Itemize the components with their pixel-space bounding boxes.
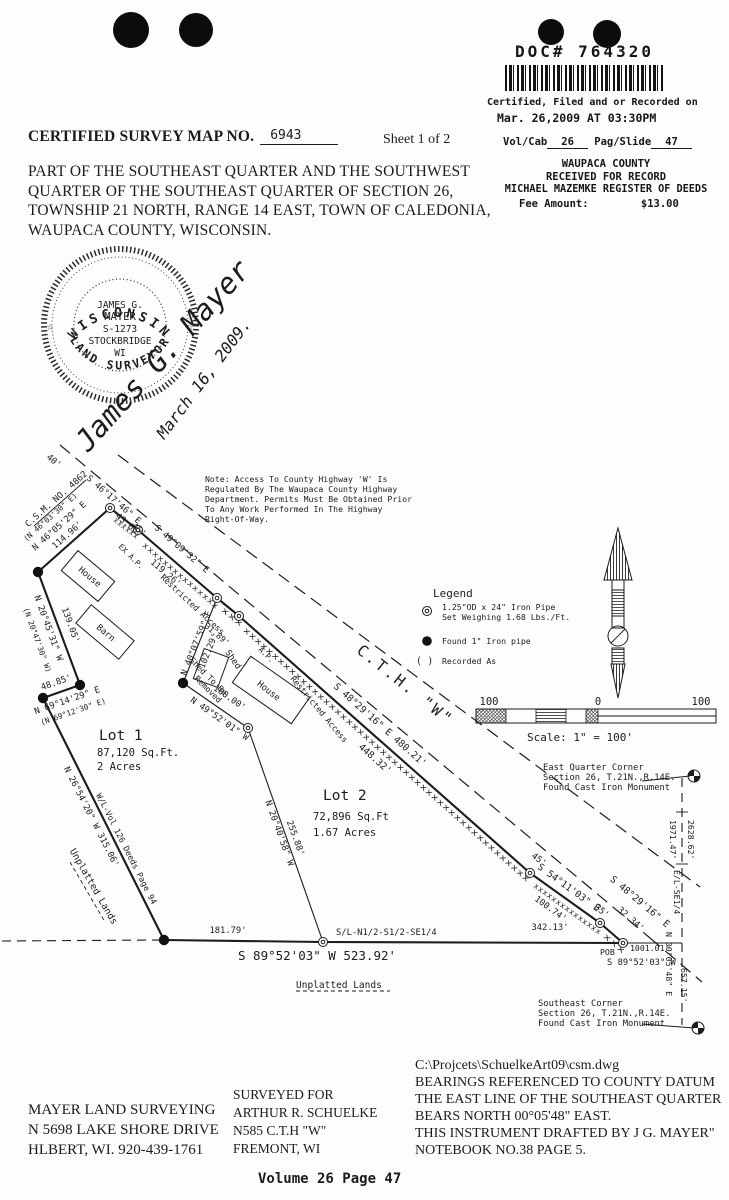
description-line2: QUARTER OF THE SOUTHEAST QUARTER OF SECT… (28, 182, 491, 202)
csm-number: 6943 (260, 128, 337, 145)
note-line5: Right-Of-Way. (205, 514, 269, 524)
set-pipe-legend-icon (423, 607, 432, 616)
seal-name-line1: JAMES G. (97, 300, 143, 311)
found-pipe-legend-icon (422, 636, 432, 646)
certified-line2: Mar. 26,2009 AT 03:30PM (497, 111, 656, 125)
legend-paren-icon: ( ) (416, 656, 433, 667)
highway-access-note: Note: Access To County Highway 'W' Is Re… (205, 474, 412, 524)
south-line-label: S/L-N1/2-S1/2-SE1/4 (336, 928, 437, 938)
drawing-file-path: C:\Projcets\SchuelkeArt09\csm.dwg (415, 1057, 721, 1074)
note-line2: Regulated By The Waupaca County Highway (205, 484, 397, 494)
east-quarter-corner-note: East Quarter Corner Section 26, T.21N.,R… (543, 763, 675, 793)
cast-iron-monument-east-quarter (688, 770, 700, 782)
east-line-label: E/L-SE1/4 (672, 870, 682, 914)
distance-2628-62: 2628.62' (686, 820, 696, 859)
lot2-acres: 1.67 Acres (313, 827, 376, 839)
scale-zero-label: 0 (595, 696, 601, 708)
fee-value: $13.00 (595, 198, 679, 210)
page-title: CERTIFIED SURVEY MAP NO. (28, 128, 254, 145)
legend-title: Legend (433, 587, 473, 600)
surveyor-street: N 5698 LAKE SHORE DRIVE (28, 1120, 219, 1140)
eq-corner-line1: East Quarter Corner (543, 763, 644, 773)
stamp-register: MICHAEL MAZEMKE REGISTER OF DEEDS (483, 184, 729, 195)
description-line4: WAUPACA COUNTY, WISCONSIN. (28, 221, 491, 241)
scale-caption: Scale: 1" = 100' (527, 731, 633, 744)
scale-bar: 100 0 100 Scale: 1" = 100' (476, 696, 716, 744)
client-city: FREMONT, WI (233, 1140, 377, 1158)
sheet-indicator: Sheet 1 of 2 (383, 132, 450, 148)
adjacent-csm-4862: C.S.M. NO. 4862 (24, 469, 90, 529)
distance-181-79: 181.79' (209, 926, 246, 936)
unplatted-lands-south: Unplatted Lands (296, 980, 382, 991)
se-corner-line1: Southeast Corner (538, 999, 623, 1009)
surveyor-address-block: MAYER LAND SURVEYING N 5698 LAKE SHORE D… (28, 1100, 219, 1160)
house2-label: House (255, 679, 282, 703)
lot1-area: 87,120 Sq.Ft. (97, 747, 179, 759)
scale-right-label: 100 (692, 696, 711, 708)
lot1-name: Lot 1 (99, 728, 143, 744)
se-corner-line2: Section 26, T.21N.,R.14E. (538, 1009, 670, 1019)
page-value: 47 (651, 136, 692, 149)
eq-corner-line3: Found Cast Iron Monument (543, 783, 670, 793)
barcode (505, 65, 663, 91)
stamp-received: RECEIVED FOR RECORD (483, 171, 729, 183)
volume-page-row: Vol/Cab26 Pag/Slide47 (503, 136, 692, 148)
lot2-name: Lot 2 (323, 788, 367, 804)
legend-item3: Recorded As (442, 656, 496, 666)
legend-item1-line1: 1.25"OD x 24" Iron Pipe (442, 602, 555, 612)
client-street: N585 C.T.H "W" (233, 1122, 377, 1140)
surveyed-for-title: SURVEYED FOR (233, 1086, 377, 1104)
survey-document-page: WISCONSIN LAND SURVEYOR JAMES G. MAYER S… (0, 0, 729, 1200)
seal-state: WI (114, 348, 125, 359)
certified-line1: Certified, Filed and or Recorded on (487, 97, 698, 108)
note-line4: To Any Work Performed In The Highway (205, 504, 383, 514)
legend: Legend 1.25"OD x 24" Iron Pipe Set Weigh… (416, 587, 570, 667)
bearings-note-line3: BEARS NORTH 00°05'48" EAST. (415, 1108, 721, 1125)
distance-1971-47: 1971.47' (668, 820, 678, 859)
title-row: CERTIFIED SURVEY MAP NO. 6943 (28, 128, 338, 147)
legend-item1-line2: Set Weighing 1.68 Lbs./Ft. (442, 612, 570, 622)
fee-label: Fee Amount: (519, 198, 589, 210)
note-line1: Note: Access To County Highway 'W' Is (205, 474, 387, 484)
scale-left-label: 100 (480, 696, 499, 708)
description-line3: TOWNSHIP 21 NORTH, RANGE 14 EAST, TOWN O… (28, 201, 491, 221)
lot1-acres: 2 Acres (97, 761, 141, 773)
surveyor-seal: WISCONSIN LAND SURVEYOR JAMES G. MAYER S… (44, 249, 257, 458)
point-of-beginning: POB (600, 947, 615, 957)
seal-license: S-1273 (103, 324, 137, 335)
legal-description: PART OF THE SOUTHEAST QUARTER AND THE SO… (28, 162, 491, 240)
se-corner-line3: Found Cast Iron Monument (538, 1019, 665, 1029)
note-line3: Department. Permits Must Be Obtained Pri… (205, 494, 412, 504)
cast-iron-monument-southeast (692, 1022, 704, 1034)
seal-city: STOCKBRIDGE (89, 336, 152, 347)
doc-number: DOC# 764320 (515, 42, 654, 61)
row-width-40: 40' (44, 453, 63, 471)
description-line1: PART OF THE SOUTHEAST QUARTER AND THE SO… (28, 162, 491, 182)
southeast-corner-note: Southeast Corner Section 26, T.21N.,R.14… (538, 999, 670, 1029)
seal-star-left-icon: ☆ (47, 320, 54, 333)
volume-page-footer: Volume 26 Page 47 (258, 1171, 401, 1187)
distance-657-15: 657.15' (679, 968, 689, 1003)
bearings-note-line2: THE EAST LINE OF THE SOUTHEAST QUARTER (415, 1091, 721, 1108)
vol-value: 26 (547, 136, 588, 149)
surveyed-for-block: SURVEYED FOR ARTHUR R. SCHUELKE N585 C.T… (233, 1086, 377, 1158)
distance-1001-01: 1001.01' (630, 943, 669, 953)
surveyor-name: MAYER LAND SURVEYING (28, 1100, 219, 1120)
stamp-fee-row: Fee Amount: $13.00 (519, 198, 679, 210)
bearing-n000548e: N 00°05'48" E (664, 932, 674, 996)
shed-label: Shed (222, 648, 242, 671)
page-label: Pag/Slide (594, 136, 651, 148)
seal-name-line2: MAYER (104, 311, 136, 323)
lot2-area: 72,896 Sq.Ft (313, 811, 389, 823)
drafting-notes-block: C:\Projcets\SchuelkeArt09\csm.dwg BEARIN… (415, 1057, 721, 1159)
stamp-county: WAUPACA COUNTY (483, 158, 729, 170)
bearings-note-line1: BEARINGS REFERENCED TO COUNTY DATUM (415, 1074, 721, 1091)
eq-corner-line2: Section 26, T.21N.,R.14E. (543, 773, 675, 783)
north-arrow-icon (604, 528, 632, 698)
notebook-note: NOTEBOOK NO.38 PAGE 5. (415, 1142, 721, 1159)
distance-342-13: 342.13' (531, 923, 568, 933)
surveyor-city-phone: HLBERT, WI. 920-439-1761 (28, 1140, 219, 1160)
drafted-by-note: THIS INSTRUMENT DRAFTED BY J G. MAYER" (415, 1125, 721, 1142)
client-name: ARTHUR R. SCHUELKE (233, 1104, 377, 1122)
vol-label: Vol/Cab (503, 136, 547, 148)
bearing-s895203w-52392: S 89°52'03" W 523.92' (238, 948, 396, 963)
legend-item2: Found 1" Iron pipe (442, 636, 531, 646)
